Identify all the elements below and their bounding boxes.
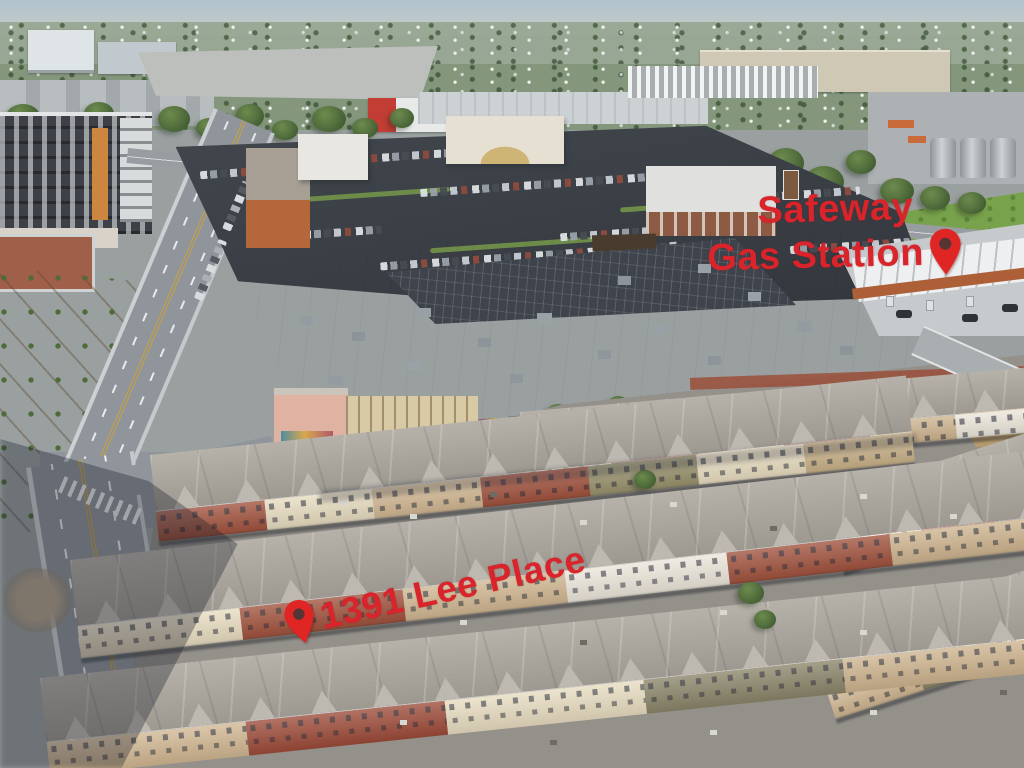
plant-machinery (908, 136, 926, 143)
tree (738, 582, 764, 604)
vacant-lot (138, 46, 438, 100)
plant-machinery (888, 120, 914, 128)
gas-station-label-line1: Safeway (705, 185, 966, 234)
car (896, 310, 912, 318)
tree (754, 610, 776, 629)
tree (272, 120, 298, 140)
tree (312, 106, 346, 132)
roof-vents (340, 500, 347, 505)
tree (846, 150, 876, 174)
fuel-pump (886, 296, 894, 307)
gas-station-label: Safeway Gas Station (705, 185, 967, 284)
tree (634, 470, 656, 489)
car (962, 314, 978, 322)
rooftop-hvac-units (300, 316, 313, 325)
rv-storage-lot (628, 66, 818, 98)
cement-plant (868, 92, 1024, 184)
retail-building (446, 116, 564, 164)
tree (158, 106, 190, 132)
fuel-pump (966, 296, 974, 307)
office-building (28, 30, 94, 73)
apartment-wing (120, 118, 152, 222)
silo (990, 138, 1016, 178)
retail-building (298, 134, 368, 180)
gas-station-label-line2: Gas Station (707, 231, 925, 281)
map-pin-icon (925, 227, 966, 278)
aerial-photo: Safeway Gas Station 1391 Lee Place (0, 0, 1024, 768)
tree (390, 108, 414, 128)
silo (930, 138, 956, 178)
silo (960, 138, 986, 178)
car (1002, 304, 1018, 312)
fuel-pump (926, 300, 934, 311)
apartment-accent (92, 128, 108, 220)
